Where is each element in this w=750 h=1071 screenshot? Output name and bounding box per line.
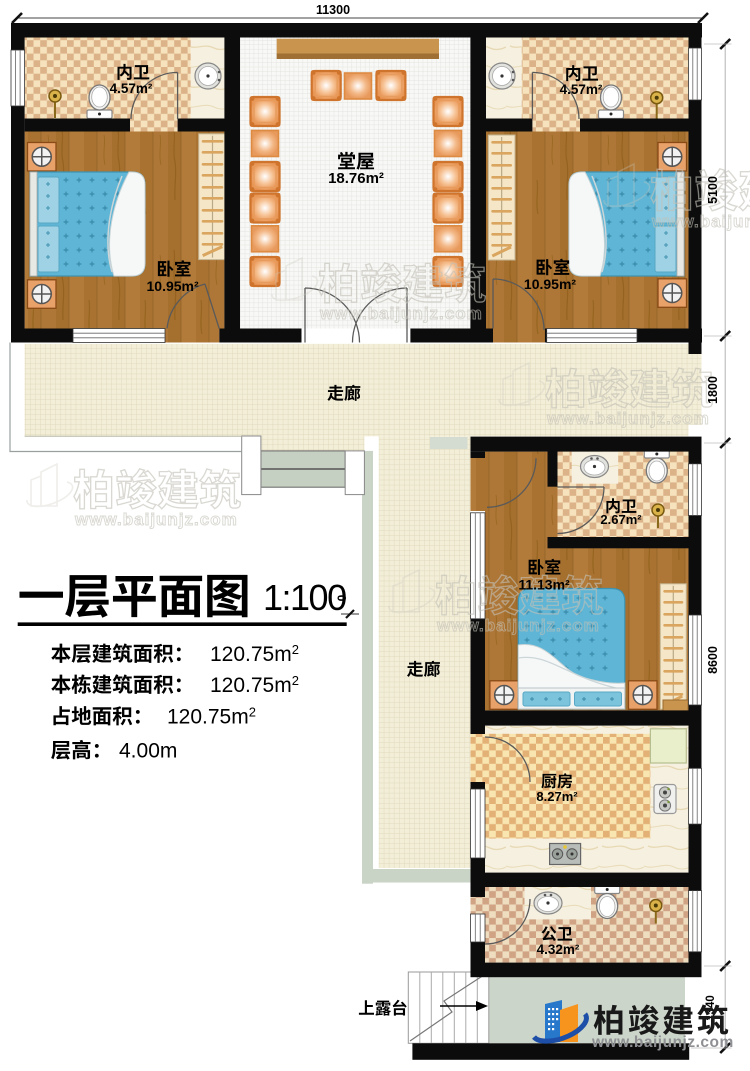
svg-text:www.baijunjz.com: www.baijunjz.com [319, 304, 483, 323]
svg-text:120.75m2: 120.75m2 [210, 642, 299, 666]
svg-text:4.57m²: 4.57m² [110, 81, 153, 96]
svg-text:4.00m: 4.00m [119, 740, 177, 763]
svg-text:www.baijunjz.com: www.baijunjz.com [651, 212, 750, 231]
svg-text:10.95m²: 10.95m² [147, 278, 199, 294]
svg-text:120.75m2: 120.75m2 [167, 705, 256, 729]
svg-text:5100: 5100 [706, 176, 720, 204]
svg-text:1:100: 1:100 [263, 577, 346, 618]
svg-text:2.67m²: 2.67m² [600, 512, 642, 527]
svg-text:11.13m²: 11.13m² [518, 577, 570, 593]
svg-text:www.baijunjz.com: www.baijunjz.com [436, 616, 600, 635]
svg-text:4.57m²: 4.57m² [560, 82, 603, 97]
svg-text:4.32m²: 4.32m² [537, 942, 580, 957]
svg-text:8600: 8600 [706, 646, 720, 674]
svg-text:www.baijunjz.com: www.baijunjz.com [591, 1034, 734, 1051]
svg-text:11300: 11300 [316, 3, 350, 17]
svg-text:10.95m²: 10.95m² [524, 276, 576, 292]
svg-text:18.76m²: 18.76m² [328, 170, 384, 187]
svg-text:120.75m2: 120.75m2 [210, 673, 299, 697]
svg-text:www.baijunjz.com: www.baijunjz.com [74, 510, 238, 529]
svg-text:www.baijunjz.com: www.baijunjz.com [546, 409, 710, 428]
svg-text:1800: 1800 [706, 376, 720, 404]
svg-text:8.27m²: 8.27m² [536, 789, 578, 804]
